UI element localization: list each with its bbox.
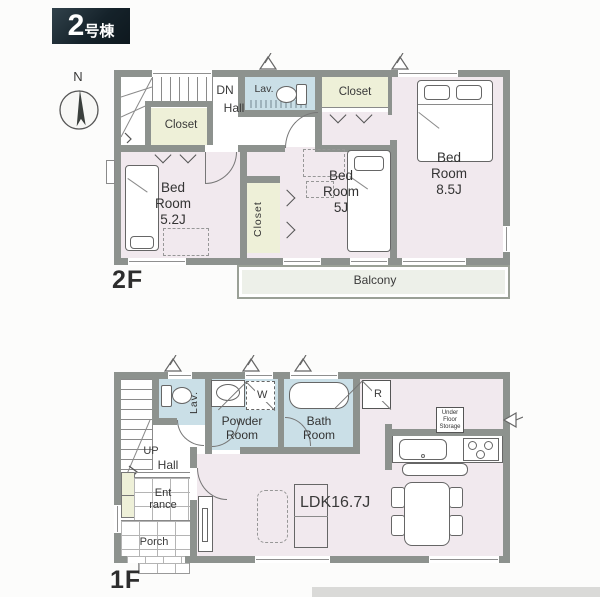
closet-a-label: Closet xyxy=(157,119,205,132)
bedroom-52-label: Bed Room 5.2J xyxy=(136,180,210,228)
hall-label-2f: Hall xyxy=(216,102,252,116)
floor2-label: 2F xyxy=(112,266,143,295)
table-line xyxy=(294,516,328,517)
window xyxy=(429,556,499,563)
compass-north-label: N xyxy=(66,70,90,85)
lav-label-1f: Lav. xyxy=(188,384,204,420)
lav-label-2f: Lav. xyxy=(247,83,281,95)
window xyxy=(503,226,510,252)
wall xyxy=(353,379,360,454)
window xyxy=(290,372,338,379)
porch-wall-gap xyxy=(127,556,185,563)
stairs-down-treads xyxy=(152,77,213,103)
wall xyxy=(240,447,360,454)
vent-flag-icon xyxy=(501,410,523,430)
pillow-icon xyxy=(424,85,450,100)
fridge-box: R xyxy=(362,380,391,409)
toilet-tank-icon xyxy=(161,385,172,407)
porch-step xyxy=(138,563,190,574)
vent-icon xyxy=(258,53,278,71)
wall xyxy=(278,379,284,450)
wall xyxy=(207,101,213,145)
window xyxy=(398,70,458,77)
under-floor-storage-box: Under Floor Storage xyxy=(436,407,464,433)
vent-icon xyxy=(390,53,410,71)
unit-title: 2 号棟 xyxy=(52,8,130,44)
wall xyxy=(385,424,392,470)
bay-window xyxy=(106,160,115,184)
wall xyxy=(205,447,212,454)
wall xyxy=(388,77,392,115)
wall xyxy=(145,101,212,107)
window xyxy=(168,372,192,379)
counter-front xyxy=(402,463,468,476)
sofa-icon xyxy=(257,490,288,543)
chair-icon xyxy=(391,515,405,536)
window xyxy=(114,505,121,533)
stairs-up-label: UP xyxy=(136,445,166,458)
pillow-icon xyxy=(456,85,482,100)
wall xyxy=(152,379,159,425)
hall-label-1f: Hall xyxy=(148,459,188,473)
toilet-tank-icon xyxy=(296,84,307,105)
window xyxy=(245,372,273,379)
bedroom-5-label: Bed Room 5J xyxy=(312,168,370,216)
washer-box: W xyxy=(246,381,275,410)
drain-icon xyxy=(421,454,425,458)
wall xyxy=(190,447,197,468)
entrance-label: Ent rance xyxy=(140,487,186,511)
porch-label: Porch xyxy=(131,536,177,549)
window xyxy=(128,258,186,265)
wall xyxy=(390,140,397,258)
powder-room-label: Powder Room xyxy=(210,414,274,442)
bathtub-icon xyxy=(289,382,349,409)
burner-icon xyxy=(468,441,477,450)
window xyxy=(283,258,321,265)
compass-icon xyxy=(58,86,100,132)
chair-icon xyxy=(449,515,463,536)
bed-line xyxy=(418,104,492,105)
vent-icon xyxy=(163,355,183,373)
fridge-label: R xyxy=(372,388,384,401)
closet-b-label: Closet xyxy=(331,86,379,99)
pillow-icon xyxy=(130,236,154,249)
bath-room-label: Bath Room xyxy=(288,414,350,442)
burner-icon xyxy=(484,441,493,450)
window xyxy=(255,556,330,563)
bedroom-85-label: Bed Room 8.5J xyxy=(410,150,488,198)
closet-c-label: Closet xyxy=(252,194,274,244)
wall xyxy=(159,418,177,425)
balcony-label: Balcony xyxy=(330,274,420,288)
burner-icon xyxy=(476,450,485,459)
dining-table-icon xyxy=(404,482,450,546)
ldk-label: LDK16.7J xyxy=(300,494,400,512)
scan-artifact-bar xyxy=(312,587,600,597)
window xyxy=(402,258,466,265)
unit-suffix: 号棟 xyxy=(84,11,114,41)
shoe-cabinet xyxy=(121,472,135,518)
vent-icon xyxy=(293,355,313,373)
desk-icon xyxy=(163,228,209,256)
stairs-dn-label: DN xyxy=(210,84,240,98)
wall xyxy=(145,101,151,145)
tv-icon xyxy=(202,508,208,542)
washer-label: W xyxy=(255,389,269,402)
closet-b-front-line xyxy=(322,107,388,108)
floorplan-sheet: 2 号棟 N xyxy=(0,0,600,597)
unit-number: 2 xyxy=(68,11,85,41)
wall xyxy=(240,176,280,183)
wall xyxy=(240,145,247,258)
vent-icon xyxy=(241,355,261,373)
chair-icon xyxy=(449,487,463,508)
window xyxy=(350,258,388,265)
window xyxy=(152,70,212,77)
wall xyxy=(190,500,197,556)
floor1-label: 1F xyxy=(110,566,141,595)
